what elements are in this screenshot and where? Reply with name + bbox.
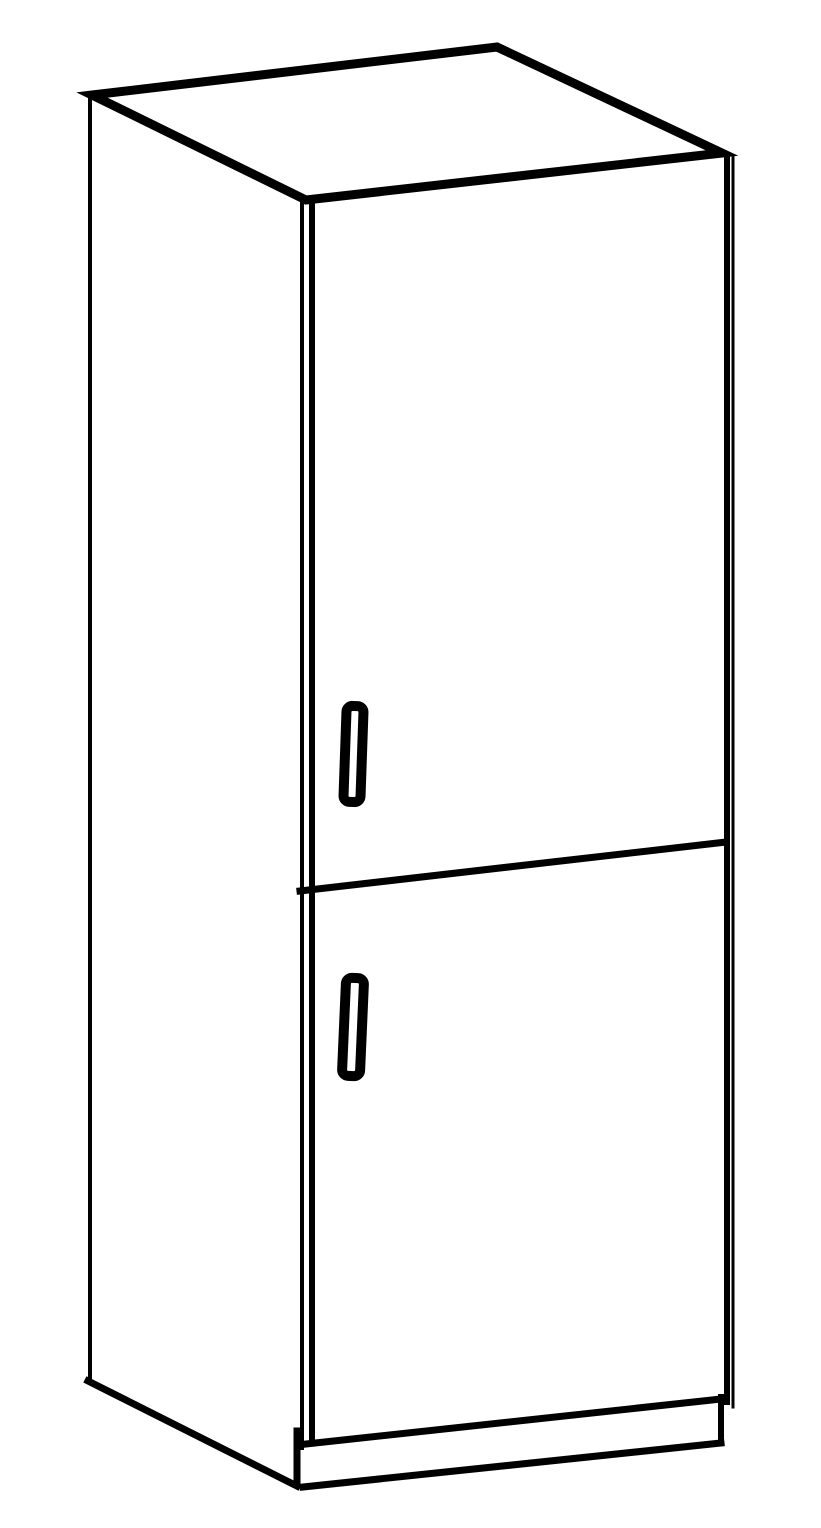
plinth-top-edge (306, 1399, 721, 1444)
upper-door-handle (343, 706, 363, 803)
page (0, 0, 821, 1528)
cabinet-line-drawing (0, 0, 821, 1528)
cabinet-top-face (92, 47, 722, 200)
lower-door-handle (342, 978, 364, 1077)
cabinet-illustration (0, 0, 821, 1528)
door-divider-edge (300, 842, 726, 891)
plinth-bottom-edge (303, 1443, 721, 1487)
left-side-bottom-edge (88, 1381, 297, 1486)
